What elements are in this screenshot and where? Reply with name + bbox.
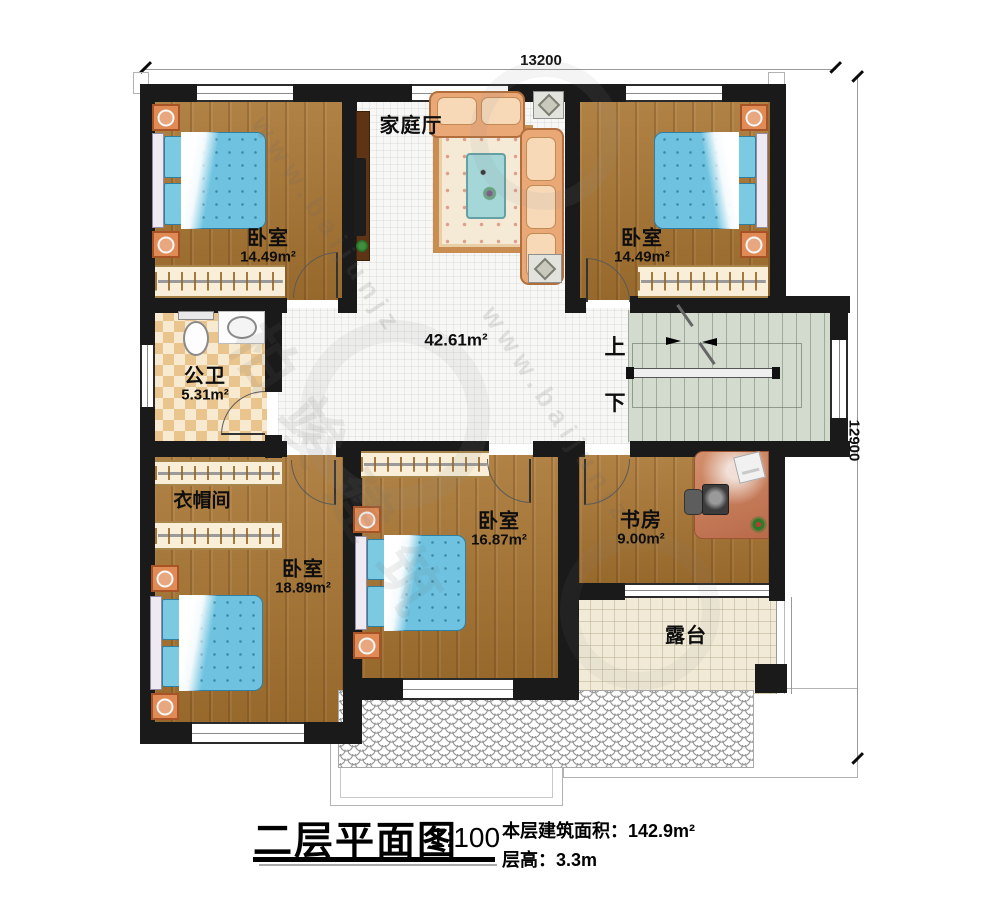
room-label-terrace: 露台: [665, 625, 707, 647]
wall-segment: [558, 441, 579, 700]
sink: [227, 316, 257, 339]
tv: [354, 158, 366, 236]
wall-segment: [830, 418, 848, 457]
wall-segment: [770, 84, 786, 308]
side-table: [533, 91, 564, 119]
window: [626, 84, 722, 102]
window: [403, 678, 513, 700]
roof-eave-tiles: [338, 690, 754, 768]
dimension-tick: [829, 61, 841, 73]
nightstand: [353, 632, 381, 659]
nightstand: [151, 565, 179, 592]
hall-area-label: 42.61m²: [424, 330, 487, 349]
floor-height-text: 层高：3.3m: [502, 846, 597, 872]
room-label-study: 书房 9.00m²: [617, 509, 665, 548]
sofa-cushion: [437, 97, 477, 125]
window: [140, 345, 155, 407]
window-terrace-door: [625, 583, 769, 598]
nightstand: [151, 693, 179, 720]
stairs-up-label: 上: [605, 336, 626, 360]
bed: [152, 132, 266, 229]
window: [192, 722, 304, 744]
wall-segment: [304, 722, 362, 744]
office-chair: [684, 489, 703, 515]
floor-plan-canvas: 13200 12900: [0, 0, 1000, 914]
sofa-cushion: [526, 137, 556, 181]
plan-scale: 1:100: [430, 822, 500, 854]
sofa-cushion: [481, 97, 521, 125]
nightstand: [152, 104, 180, 131]
wall-segment: [345, 678, 403, 700]
wall-segment: [140, 441, 287, 457]
wall-segment: [769, 455, 785, 601]
wall-segment: [630, 296, 850, 313]
wall-segment: [265, 310, 282, 392]
plant: [356, 240, 368, 252]
room-label-bedroom-top-left: 卧室 14.49m²: [240, 227, 296, 266]
bed: [654, 132, 768, 229]
dimension-line-top: [145, 69, 836, 70]
bed-headboard: [152, 133, 164, 228]
bed-sheet: [181, 132, 221, 229]
title-underline-shadow: [259, 864, 497, 866]
terrace-pillar: [755, 664, 787, 693]
bed-sheet: [179, 595, 219, 691]
floor-area-text: 本层建筑面积：142.9m²: [502, 817, 695, 843]
bed-headboard: [150, 596, 162, 690]
room-label-cloakroom: 衣帽间: [173, 490, 230, 511]
toilet-tank: [178, 311, 214, 320]
side-table: [528, 254, 562, 283]
room-label-bathroom: 公卫 5.31m²: [181, 365, 229, 404]
stair-railing: [628, 368, 778, 378]
sofa-two-seat: [429, 91, 525, 138]
stair-railing-post: [772, 367, 780, 379]
nightstand: [740, 231, 768, 258]
room-label-bedroom-bottom-left: 卧室 18.89m²: [275, 558, 331, 597]
closet-rack: [155, 265, 285, 298]
closet-rack: [638, 265, 768, 298]
coffee-table: [466, 153, 506, 219]
window: [830, 340, 848, 418]
wall-segment: [579, 583, 625, 600]
bed: [355, 535, 466, 631]
closet-rack: [361, 451, 489, 478]
wall-segment: [830, 296, 848, 340]
nightstand: [353, 506, 381, 533]
plant: [750, 516, 767, 533]
room-label-bedroom-top-right: 卧室 14.49m²: [614, 227, 670, 266]
bed-headboard: [756, 133, 768, 228]
wall-segment: [140, 722, 192, 744]
bed: [150, 595, 263, 691]
stair-direction-arrow: [666, 337, 681, 345]
pillow: [737, 183, 756, 225]
nightstand: [152, 231, 180, 258]
bed-headboard: [355, 536, 367, 630]
pillow: [737, 136, 756, 178]
stair-railing-post: [626, 367, 634, 379]
closet-rack: [155, 521, 282, 550]
computer-monitor: [702, 484, 729, 515]
toilet: [183, 321, 209, 356]
floor-corridor: [278, 308, 630, 444]
dimension-top-value: 13200: [505, 52, 577, 69]
title-underline: [253, 857, 495, 862]
stair-direction-arrow: [702, 338, 717, 346]
room-label-bedroom-bottom-middle: 卧室 16.87m²: [471, 510, 527, 549]
nightstand: [740, 104, 768, 131]
wall-segment: [513, 678, 577, 700]
room-label-family-hall: 家庭厅: [380, 115, 443, 137]
stairs-down-label: 下: [605, 392, 626, 416]
wall-segment: [565, 84, 580, 313]
bed-sheet: [384, 535, 424, 631]
closet-rack: [155, 460, 282, 486]
sofa-cushion: [526, 185, 556, 229]
window: [197, 84, 293, 102]
bed-sheet: [699, 132, 739, 229]
